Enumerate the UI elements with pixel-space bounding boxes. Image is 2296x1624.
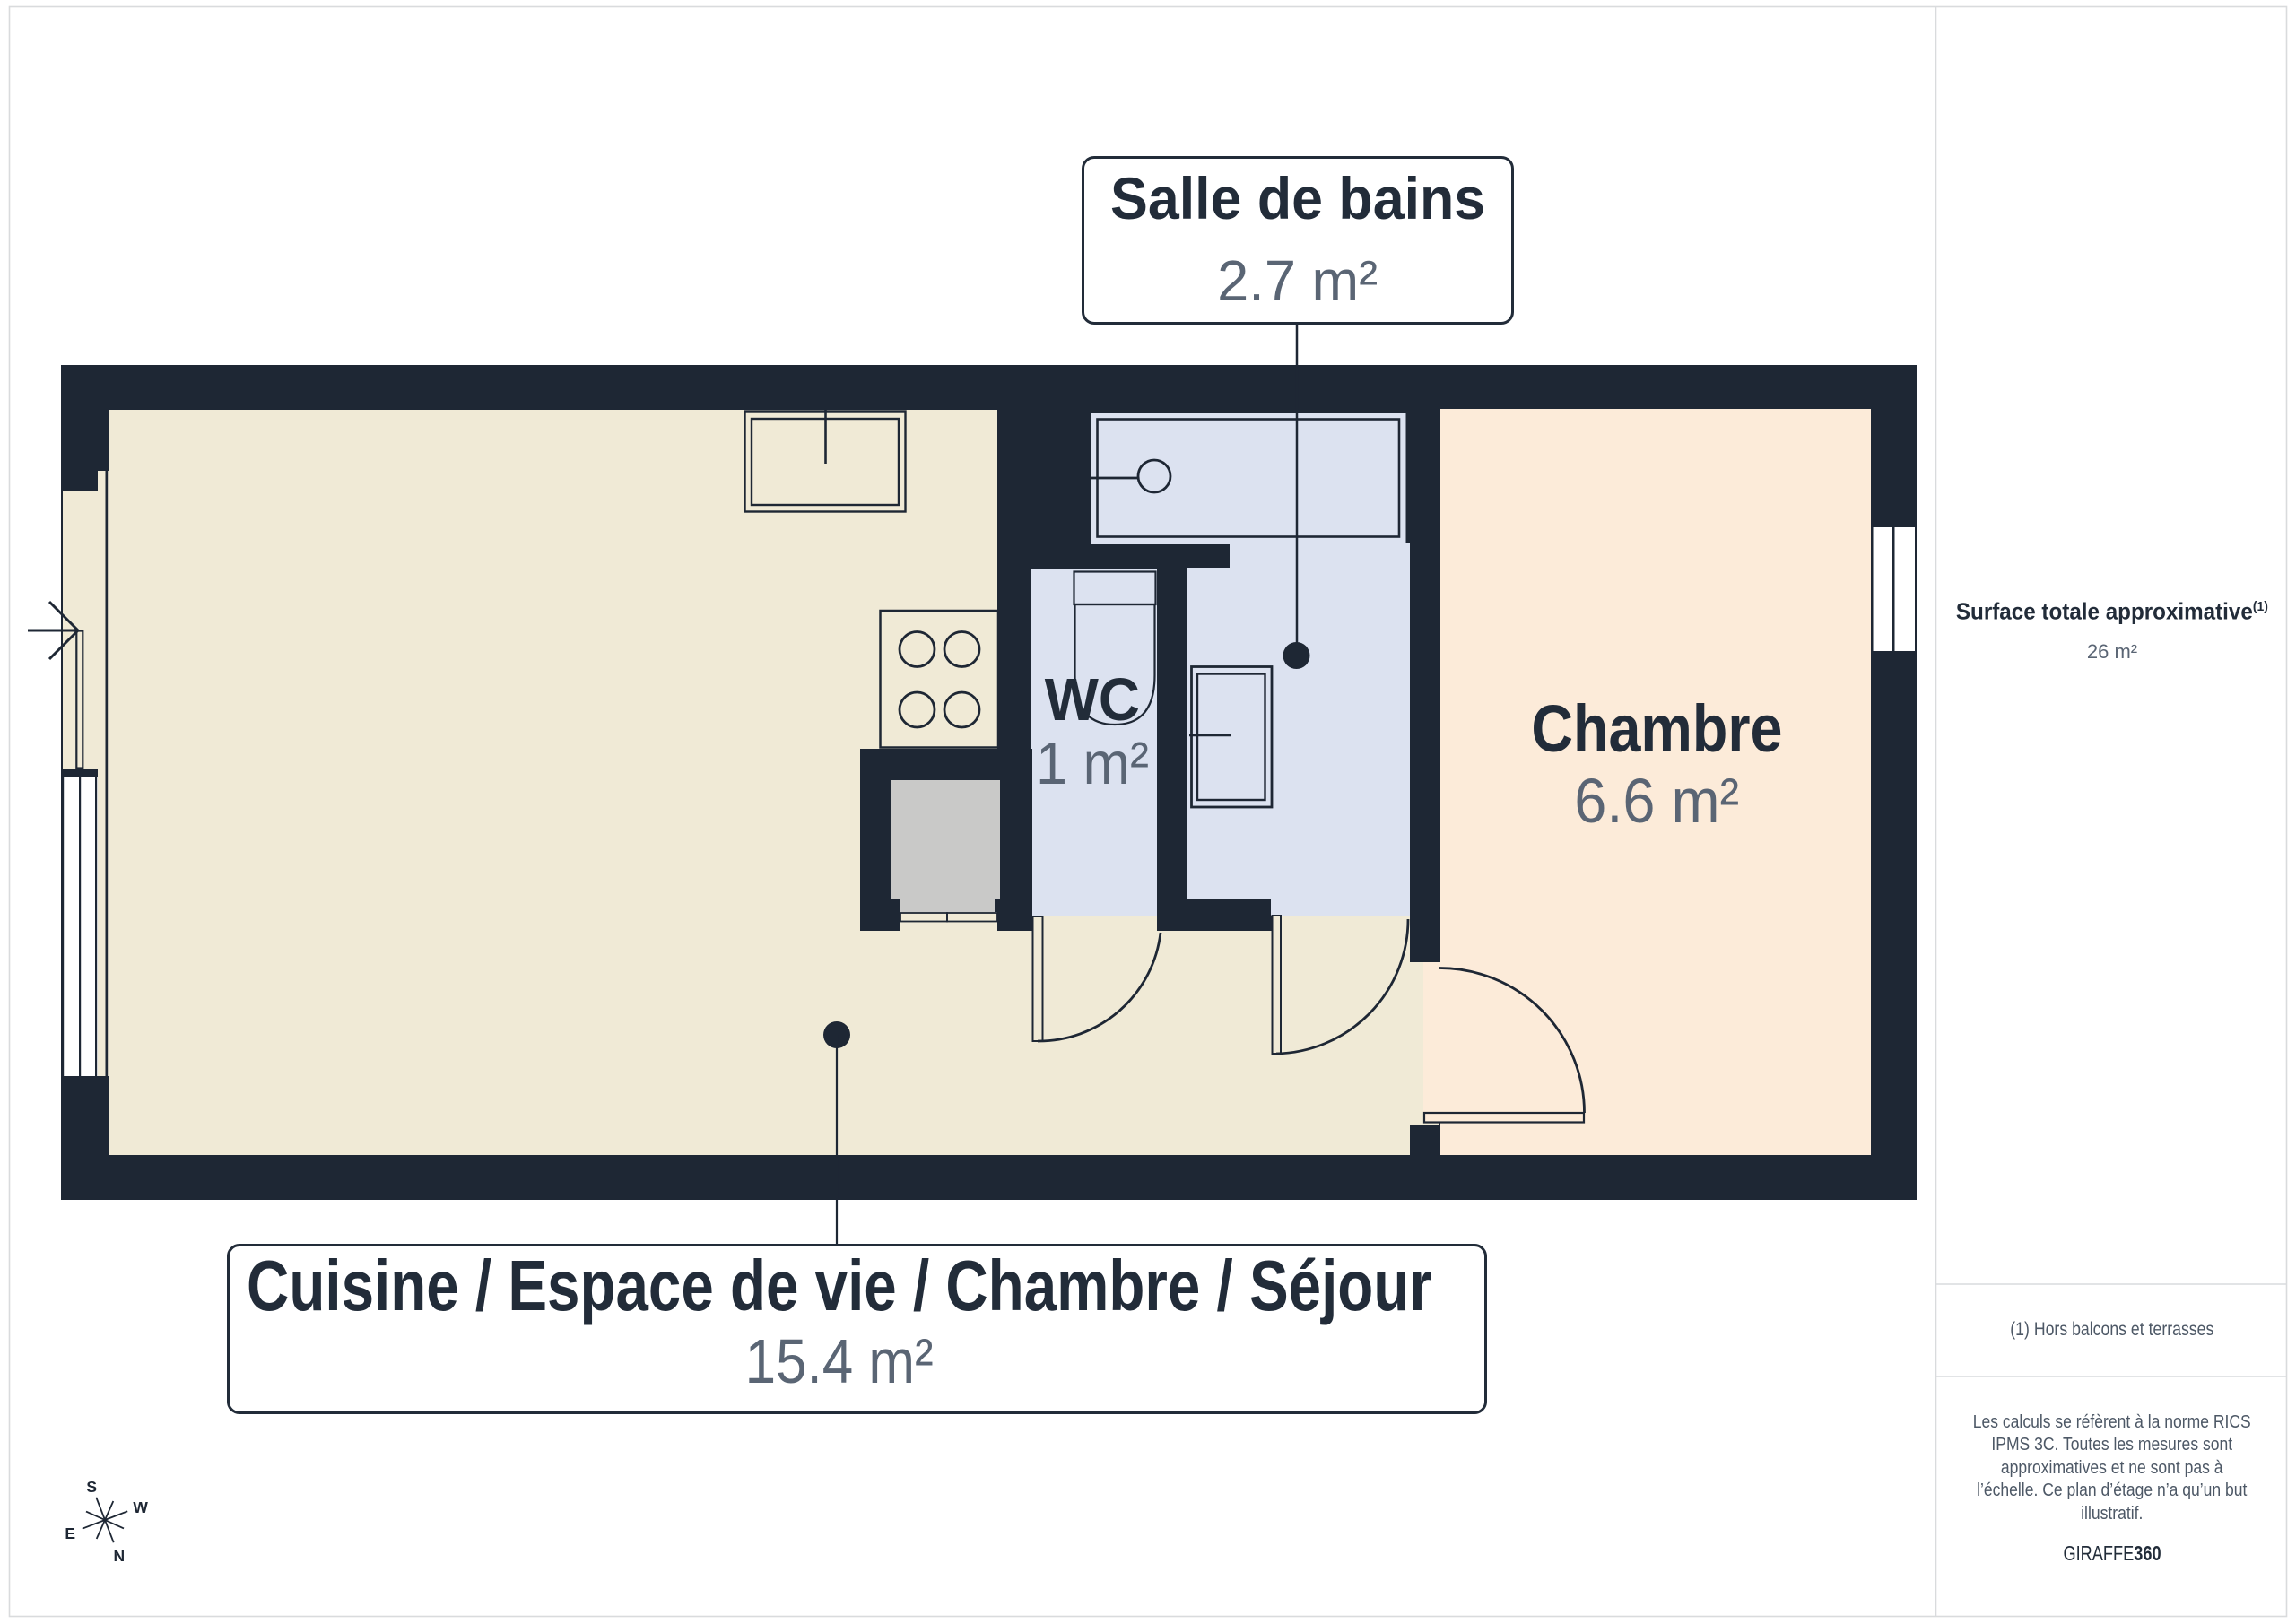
svg-text:N: N [113, 1547, 125, 1565]
svg-text:E: E [65, 1524, 75, 1542]
svg-text:W: W [133, 1498, 148, 1516]
svg-text:S: S [86, 1478, 97, 1496]
